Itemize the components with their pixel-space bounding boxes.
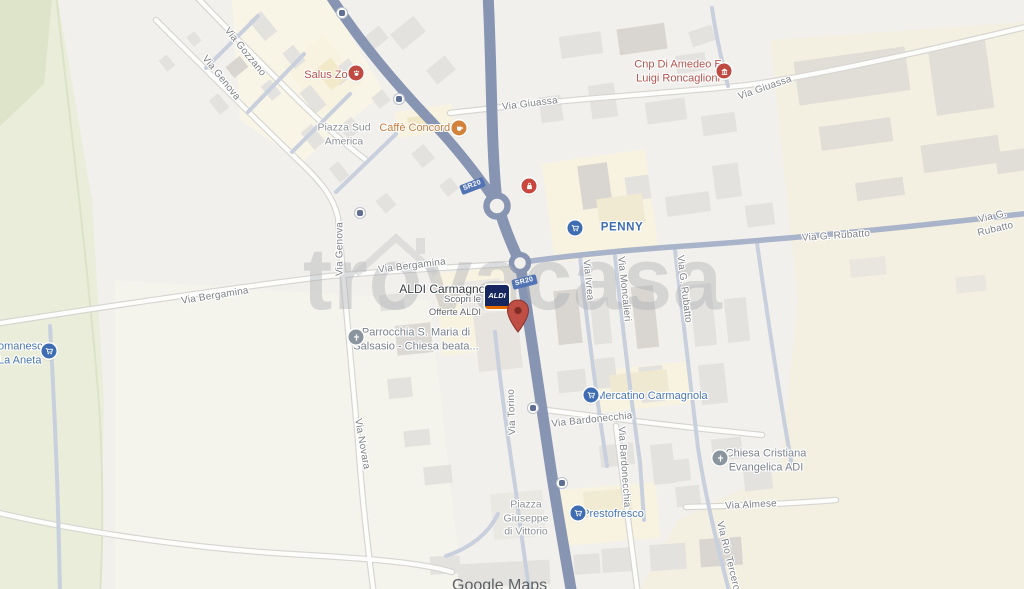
church-icon-parrocchia[interactable]: [349, 330, 364, 345]
cross-glyph: [351, 332, 361, 342]
poi-label-chiesa-evangelica[interactable]: Chiesa Cristiana Evangelica ADI: [726, 447, 807, 476]
bus-stop-icon[interactable]: [557, 478, 567, 488]
poi-label-penny[interactable]: PENNY: [601, 221, 644, 236]
poi-label-piazza-sud-america: Piazza Sud America: [317, 121, 370, 148]
roundabout-south: [512, 255, 529, 272]
church-icon-evangelica[interactable]: [713, 451, 728, 466]
poi-label-caffe-concordia[interactable]: Caffè Concordia: [379, 121, 458, 135]
roundabout-north: [487, 196, 508, 217]
cart-icon-prestofresco[interactable]: [571, 506, 586, 521]
cart-icon-la-aneta[interactable]: [42, 344, 57, 359]
street-label-genova: Via Genova: [334, 222, 347, 276]
poi-ad-aldi[interactable]: Scopri le Offerte ALDI: [429, 294, 481, 320]
cart-glyph: [570, 223, 580, 233]
cup-glyph: [454, 123, 464, 133]
cart-icon-mercatino[interactable]: [584, 388, 599, 403]
cart-icon-penny[interactable]: [568, 221, 583, 236]
bus-stop-icon[interactable]: [337, 8, 347, 18]
street-label-torino: Via Torino: [505, 389, 520, 436]
poi-label-prestofresco[interactable]: Prestofresco: [582, 507, 644, 521]
building-glyph: [719, 66, 729, 76]
poi-label-mercatino[interactable]: Mercatino Carmagnola: [596, 389, 707, 403]
zoo-icon[interactable]: [349, 66, 364, 81]
cart-glyph: [44, 346, 54, 356]
bag-glyph: [524, 181, 534, 191]
bus-stop-icon[interactable]: [355, 208, 365, 218]
shop-icon[interactable]: [522, 179, 537, 194]
map-container: trovacasa SR20 SR20 Via Gozzano Via Geno…: [0, 0, 1024, 589]
bus-stop-icon[interactable]: [394, 94, 404, 104]
cafe-icon[interactable]: [452, 121, 467, 136]
paw-glyph: [351, 68, 361, 78]
google-maps-logo[interactable]: Google Maps: [452, 577, 547, 589]
cart-glyph: [573, 508, 583, 518]
location-pin[interactable]: [505, 299, 531, 335]
poi-label-parrocchia[interactable]: Parrocchia S. Maria di Salsasio - Chiesa…: [353, 326, 478, 355]
poi-label-piazza-giuseppe: Piazza Giuseppe di Vittorio: [504, 499, 549, 540]
bus-stop-icon[interactable]: [528, 403, 538, 413]
poi-label-cnp-roncaglioni[interactable]: Cnp Di Amedeo E Luigi Roncaglioni: [634, 58, 721, 87]
cross-glyph: [715, 453, 725, 463]
cart-glyph: [586, 390, 596, 400]
poi-label-salus-zoo[interactable]: Salus Zoo: [304, 68, 354, 82]
poi-label-la-aneta[interactable]: omanesc, La Aneta: [0, 340, 46, 369]
bank-icon[interactable]: [717, 64, 732, 79]
street-label-almese: Via Almese: [725, 497, 777, 513]
